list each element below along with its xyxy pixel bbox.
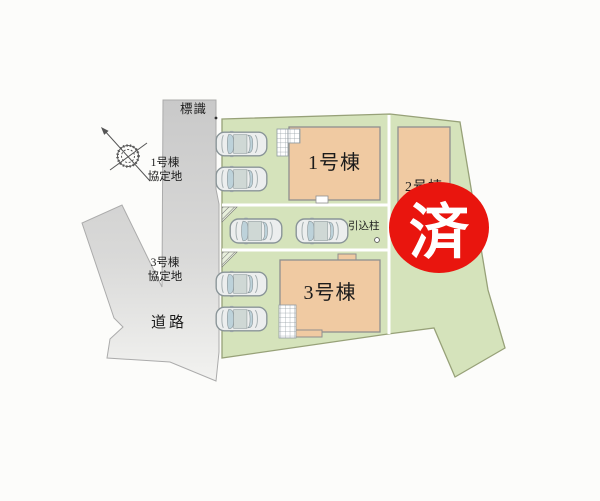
car-icon [296, 218, 348, 245]
sold-stamp: 済 [389, 182, 489, 273]
sign-marker [215, 117, 218, 120]
sold-stamp-text: 済 [409, 184, 469, 271]
car-icon [216, 131, 267, 157]
agreement-area-3-label: 3号棟 協定地 [144, 256, 186, 285]
utility-pole-label: 引込柱 [348, 220, 394, 233]
road-label: 道路 [151, 314, 187, 333]
road-area [82, 100, 219, 381]
sign-label: 標識 [180, 102, 207, 118]
utility-pole-marker [375, 238, 380, 243]
car-icon [216, 306, 267, 332]
car-icon [216, 271, 267, 297]
site-plan-drawing [0, 0, 600, 501]
building-3-porch [279, 305, 296, 338]
compass-icon [101, 127, 150, 181]
agreement-area-1-label: 1号棟 協定地 [144, 156, 186, 185]
building-1-porch [277, 129, 288, 156]
building-1-label: 1号棟 [289, 151, 380, 176]
car-icon [230, 218, 282, 245]
car-icon [216, 166, 267, 192]
building-1-porch [288, 129, 300, 143]
building-3-label: 3号棟 [280, 281, 380, 306]
site-plan: 標識 1号棟 協定地 3号棟 協定地 道路 1号棟 2号棟 3号棟 引込柱 済 [0, 0, 600, 501]
